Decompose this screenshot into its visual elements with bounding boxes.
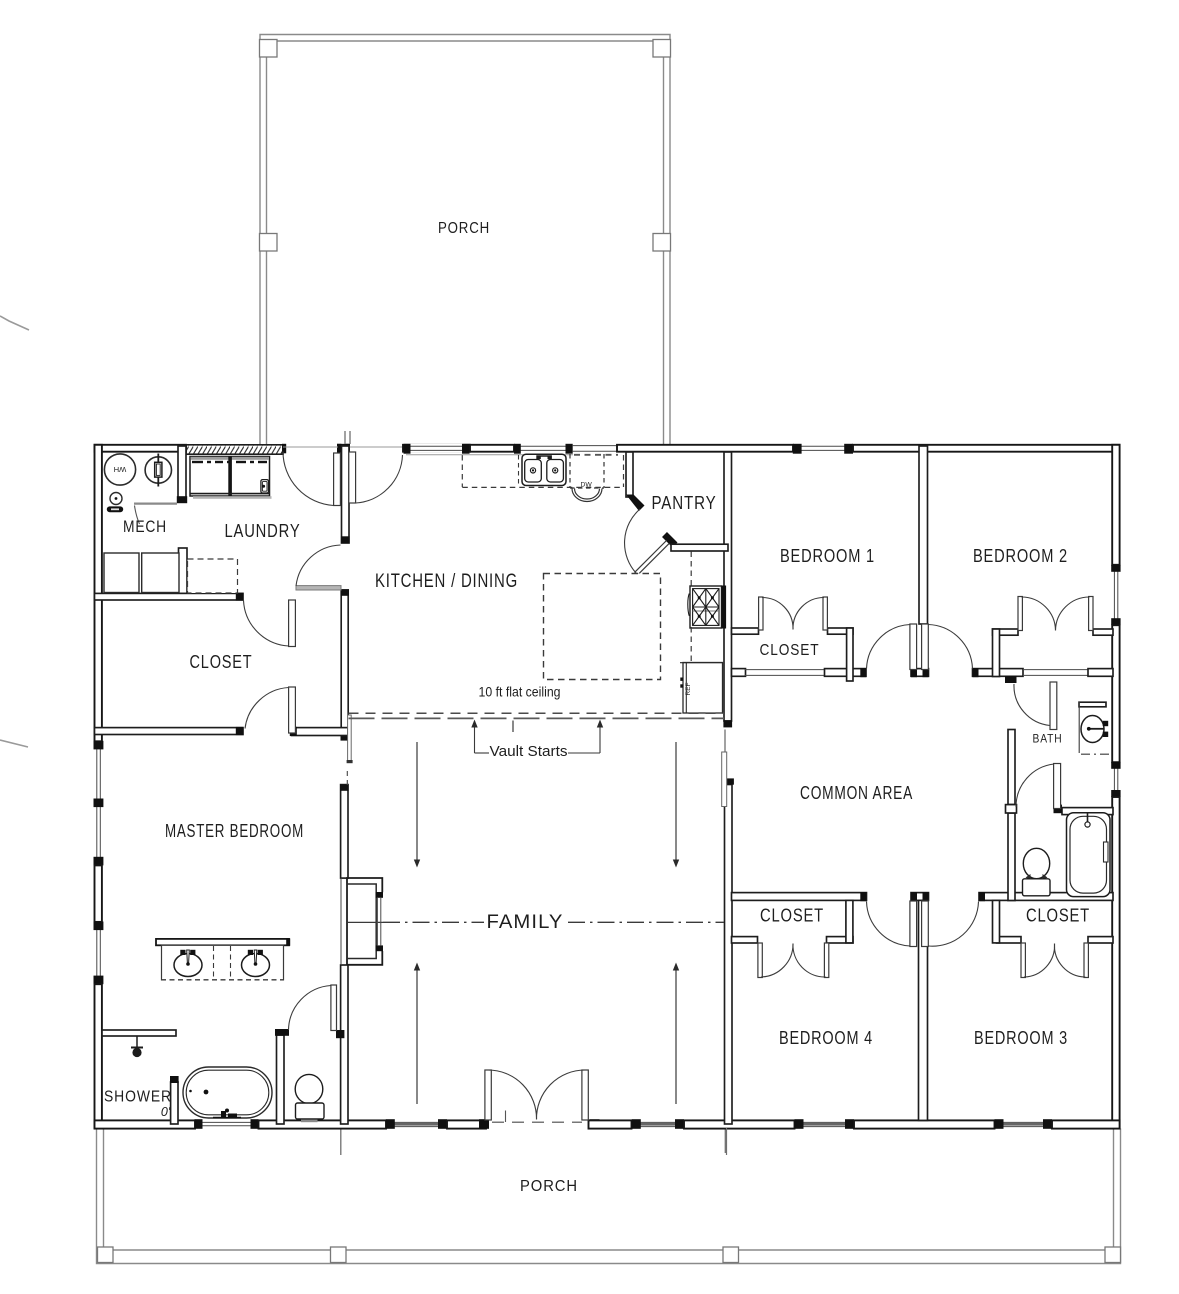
svg-text:BEDROOM 2: BEDROOM 2 [973,546,1068,566]
svg-text:PORCH: PORCH [520,1178,578,1195]
svg-text:SHOWER: SHOWER [104,1089,172,1106]
svg-text:10 ft flat ceiling: 10 ft flat ceiling [479,684,561,700]
svg-text:DW: DW [581,482,593,489]
svg-text:CLOSET: CLOSET [190,652,253,672]
svg-text:CLOSET: CLOSET [760,642,820,659]
svg-text:REF: REF [685,682,692,695]
svg-text:CLOSET: CLOSET [760,905,824,926]
svg-text:COMMON AREA: COMMON AREA [800,782,913,803]
svg-text:PORCH: PORCH [438,220,490,237]
svg-text:KITCHEN / DINING: KITCHEN / DINING [375,571,518,592]
svg-text:BATH: BATH [1033,732,1063,746]
svg-text:FAMILY: FAMILY [487,912,564,933]
svg-text:MECH: MECH [123,517,167,536]
svg-text:BEDROOM 4: BEDROOM 4 [779,1028,873,1048]
svg-text:Vault Starts: Vault Starts [490,744,568,760]
svg-text:PANTRY: PANTRY [652,493,717,513]
svg-text:MASTER BEDROOM: MASTER BEDROOM [165,821,304,841]
svg-text:BEDROOM 3: BEDROOM 3 [974,1028,1068,1048]
svg-text:LAUNDRY: LAUNDRY [225,521,301,541]
svg-text:CLOSET: CLOSET [1026,905,1090,926]
svg-text:WH: WH [114,465,127,474]
svg-text:0': 0' [161,1105,171,1119]
svg-text:BEDROOM 1: BEDROOM 1 [780,546,875,566]
